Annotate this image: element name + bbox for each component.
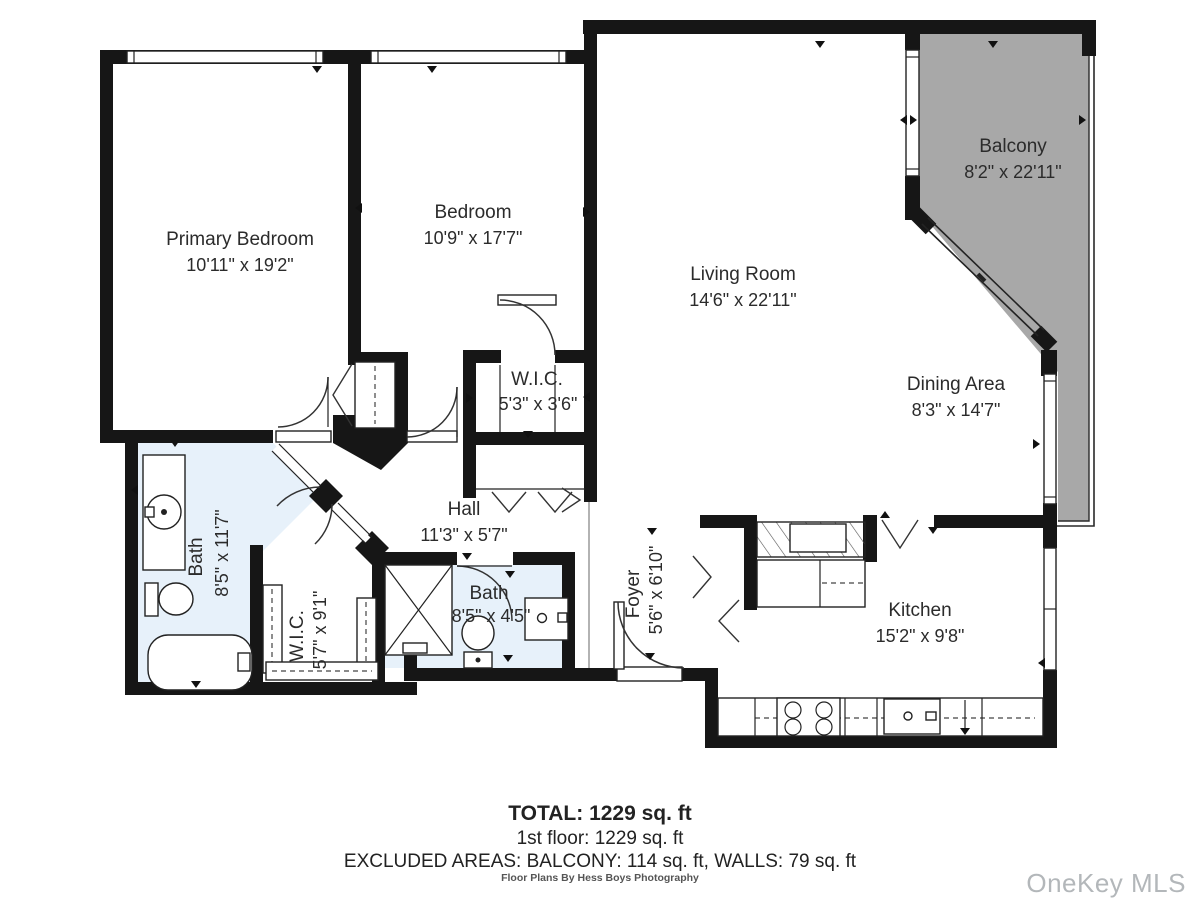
dims-wic-bedroom: 5'3" x 3'6" bbox=[499, 394, 578, 414]
floor-plan-canvas: Primary Bedroom 10'11" x 19'2" Bedroom 1… bbox=[0, 0, 1200, 795]
dims-bath-hall: 8'5" x 4'5" bbox=[452, 606, 531, 626]
label-bath-primary: Bath bbox=[186, 537, 207, 576]
label-balcony: Balcony bbox=[979, 136, 1047, 157]
dims-kitchen: 15'2" x 9'8" bbox=[876, 626, 965, 646]
dims-bath-primary: 8'5" x 11'7" bbox=[212, 509, 232, 596]
label-living-room: Living Room bbox=[690, 264, 796, 285]
window-primary-bedroom bbox=[127, 51, 323, 63]
door-arc-bedroom[interactable] bbox=[407, 387, 457, 437]
kitchen-counter-top bbox=[757, 560, 865, 607]
dims-foyer: 5'6" x 6'10" bbox=[646, 546, 666, 635]
dims-balcony: 8'2" x 22'11" bbox=[964, 162, 1061, 182]
label-wic-bedroom: W.I.C. bbox=[511, 369, 563, 390]
onekey-mls-watermark: OneKey MLS bbox=[1026, 868, 1186, 899]
dims-primary-bedroom: 10'11" x 19'2" bbox=[186, 255, 293, 275]
label-wic-primary: W.I.C. bbox=[287, 610, 308, 662]
dims-hall: 11'3" x 5'7" bbox=[420, 525, 507, 545]
label-dining-area: Dining Area bbox=[907, 374, 1006, 395]
label-primary-bedroom: Primary Bedroom bbox=[166, 229, 314, 250]
label-bath-hall: Bath bbox=[469, 583, 508, 604]
window-dining bbox=[1044, 374, 1056, 504]
kitchen-counter-bottom bbox=[718, 698, 1043, 736]
label-bedroom: Bedroom bbox=[434, 202, 511, 223]
label-kitchen: Kitchen bbox=[888, 600, 951, 621]
total-area-text: TOTAL: 1229 sq. ft bbox=[0, 802, 1200, 826]
excluded-areas-text: EXCLUDED AREAS: BALCONY: 114 sq. ft, WAL… bbox=[0, 851, 1200, 873]
label-foyer: Foyer bbox=[623, 569, 644, 618]
room-dining-area bbox=[925, 340, 1040, 500]
dims-living-room: 14'6" x 22'11" bbox=[689, 290, 796, 310]
dims-bedroom: 10'9" x 17'7" bbox=[424, 228, 523, 248]
dims-wic-primary: 5'7" x 9'1" bbox=[310, 591, 330, 670]
window-bedroom bbox=[371, 51, 566, 63]
dims-dining-area: 8'3" x 14'7" bbox=[912, 400, 1001, 420]
floor-plan-page: Primary Bedroom 10'11" x 19'2" Bedroom 1… bbox=[0, 0, 1200, 900]
window-living-balcony bbox=[906, 50, 919, 176]
room-balcony bbox=[925, 40, 1055, 210]
label-hall: Hall bbox=[448, 499, 481, 520]
stove bbox=[777, 698, 840, 736]
credit-text: Floor Plans By Hess Boys Photography bbox=[0, 872, 1200, 884]
first-floor-area-text: 1st floor: 1229 sq. ft bbox=[0, 828, 1200, 850]
